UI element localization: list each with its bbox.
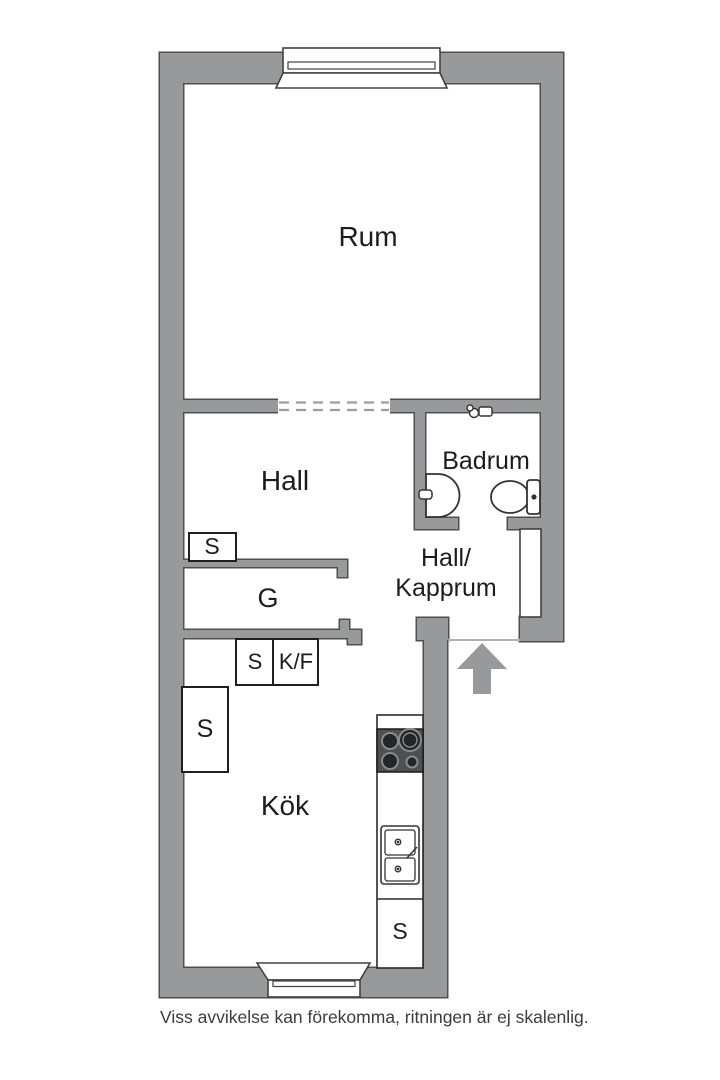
double-sink-icon: [381, 826, 419, 884]
entrance-arrow-icon: [457, 643, 507, 694]
faucet-icon: [467, 405, 492, 418]
closet-label-kf: K/F: [279, 649, 313, 675]
room-label-hall-kapprum-line2: Kapprum: [395, 573, 496, 603]
disclaimer-text: Viss avvikelse kan förekomma, ritningen …: [160, 1007, 589, 1028]
stove-icon: [377, 729, 423, 772]
closet-label-counter-s: S: [392, 918, 407, 946]
room-label-hall-kapprum: Hall/ Kapprum: [395, 543, 496, 603]
closet-label-kitchen-s: S: [197, 714, 214, 744]
dashed-opening: [278, 397, 390, 415]
room-label-kok: Kök: [261, 789, 309, 823]
door-recess: [520, 529, 541, 617]
room-label-hall: Hall: [261, 464, 309, 498]
closet-label-s-small: S: [248, 649, 263, 675]
toilet-icon: [491, 480, 540, 514]
walls: [160, 53, 563, 997]
closet-label-g: G: [257, 582, 278, 614]
wall-outlines: [159, 52, 565, 999]
room-label-rum: Rum: [338, 220, 397, 254]
window-icon: [276, 48, 447, 88]
closet-label-hall-s: S: [204, 533, 219, 561]
room-label-badrum: Badrum: [442, 446, 530, 476]
floorplan-svg: [0, 0, 720, 1080]
room-label-hall-kapprum-line1: Hall/: [395, 543, 496, 573]
window-icon: [257, 963, 370, 997]
floorplan-canvas: Rum Hall Badrum Hall/ Kapprum Kök S G S …: [0, 0, 720, 1080]
